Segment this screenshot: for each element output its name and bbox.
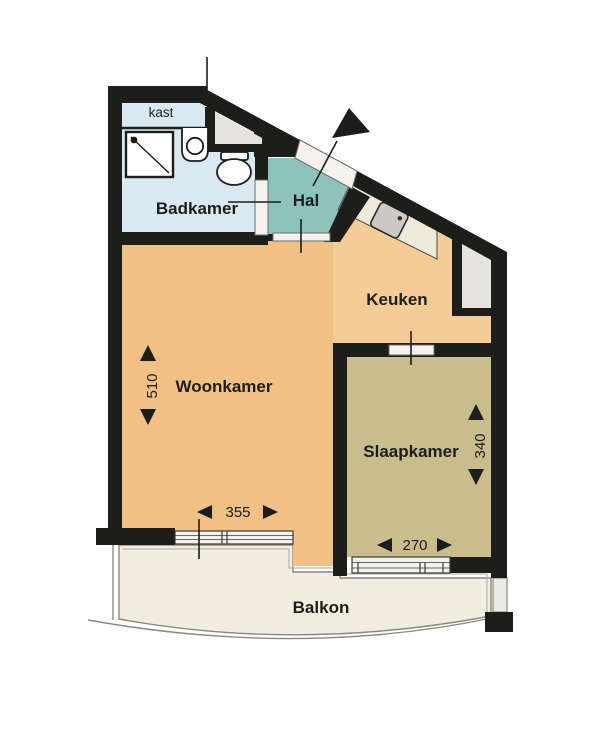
dim-slaapkamer-width-value: 270 xyxy=(402,537,427,554)
wall-bottom-left-cap xyxy=(96,528,175,545)
wall-left xyxy=(108,86,122,545)
wall-badkamer-hal-divider xyxy=(255,154,268,182)
dim-slaapkamer-depth-value: 340 xyxy=(472,433,489,458)
balkon-label: Balkon xyxy=(293,598,350,617)
keuken-niche-wall-left xyxy=(452,239,462,316)
wall-right xyxy=(491,252,507,578)
kast-label: kast xyxy=(149,105,174,120)
hal-label: Hal xyxy=(293,191,319,210)
balkon-right-pillar xyxy=(485,612,513,632)
slaapkamer-label: Slaapkamer xyxy=(363,442,459,461)
keuken-label: Keuken xyxy=(366,290,427,309)
balkon-right-panel xyxy=(493,578,507,612)
wall-badkamer-bottom xyxy=(122,232,268,245)
toilet-icon xyxy=(217,152,251,185)
wall-woonkamer-slaapkamer xyxy=(333,343,347,576)
dim-woonkamer-width-value: 355 xyxy=(225,504,250,521)
badkamer-hal-door xyxy=(255,180,268,235)
woonkamer-label: Woonkamer xyxy=(176,377,273,396)
dim-woonkamer-depth-value: 510 xyxy=(144,373,161,398)
slaapkamer-window xyxy=(352,557,450,573)
floorplan-svg: 510 355 340 270 kast Badkamer Hal Keuken… xyxy=(0,0,600,731)
entrance-arrow-icon xyxy=(332,108,370,138)
wall-top xyxy=(108,86,207,103)
washbasin-icon xyxy=(182,128,208,161)
badkamer-niche-wall-bottom xyxy=(215,144,262,152)
keuken-niche-wall-bottom xyxy=(452,308,491,316)
floorplan-canvas: 510 355 340 270 kast Badkamer Hal Keuken… xyxy=(0,0,600,731)
badkamer-label: Badkamer xyxy=(156,199,239,218)
shower-icon xyxy=(126,132,173,177)
woonkamer-window xyxy=(175,531,293,544)
wall-slaapkamer-bottom xyxy=(450,557,492,573)
